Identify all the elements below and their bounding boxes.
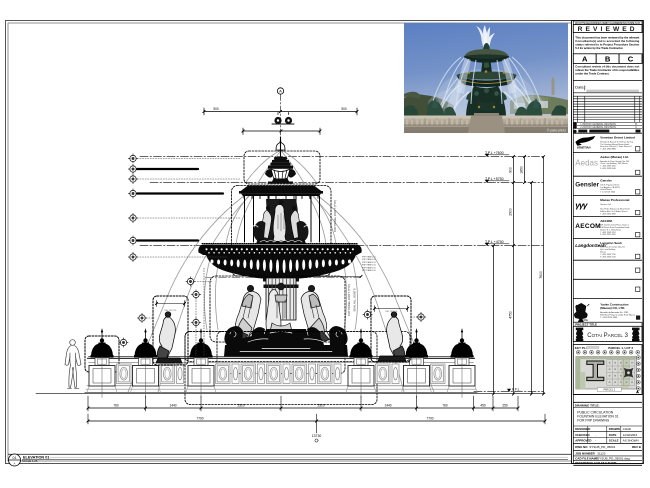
svg-text:500: 500 — [341, 107, 347, 111]
svg-text:Macau Professional: Macau Professional — [600, 198, 629, 202]
svg-text:T 1 213 327 3600: T 1 213 327 3600 — [600, 192, 615, 194]
svg-text:4750: 4750 — [509, 311, 513, 319]
svg-text:FRP PANEL JOINT (TYP): FRP PANEL JOINT (TYP) — [347, 284, 351, 316]
svg-text:A: A — [14, 462, 16, 466]
svg-text:31123: 31123 — [597, 451, 605, 455]
svg-text:1850: 1850 — [520, 166, 524, 174]
svg-text:PARCEL 1, LOT 3: PARCEL 1, LOT 3 — [608, 346, 633, 350]
svg-text:760: 760 — [442, 404, 448, 408]
svg-text:13730: 13730 — [312, 434, 322, 438]
svg-text:FRP PANEL 06: FRP PANEL 06 — [362, 269, 377, 272]
svg-text:01: 01 — [13, 456, 17, 460]
svg-text:A: A — [582, 54, 588, 63]
svg-text:REV B: REV B — [632, 445, 641, 449]
svg-text:Avenida da Amizade No. 1287,: Avenida da Amizade No. 1287, — [600, 311, 629, 314]
svg-text:7600: 7600 — [539, 271, 543, 279]
svg-text:AS SHOWN: AS SHOWN — [623, 439, 639, 443]
svg-text:YAOKE: YAOKE — [579, 318, 588, 322]
svg-text:DRAWN: DRAWN — [609, 427, 620, 431]
svg-text:FRP PANEL 04: FRP PANEL 04 — [362, 264, 377, 267]
svg-text:B: B — [605, 54, 611, 63]
svg-text:Gensler: Gensler — [575, 182, 599, 189]
svg-text:1440: 1440 — [384, 404, 391, 408]
svg-text:FRP PANEL JOINT (TYP): FRP PANEL JOINT (TYP) — [333, 200, 337, 232]
svg-text:2 22/03/16 GENERAL REVIS: 2 22/03/16 GENERAL REVISION — [580, 126, 616, 129]
svg-text:CHECKED: CHECKED — [575, 433, 589, 437]
svg-text:© paris-photo: © paris-photo — [547, 129, 566, 133]
svg-text:REFERENCE CAD FILE NAME: REFERENCE CAD FILE NAME — [575, 461, 616, 465]
svg-text:T +853 2870 3360: T +853 2870 3360 — [600, 317, 618, 319]
svg-text:SCALE: SCALE — [609, 439, 619, 443]
svg-text:SYSUB_PD_05001: SYSUB_PD_05001 — [589, 445, 615, 449]
svg-text:REVIEWED: REVIEWED — [578, 26, 638, 33]
svg-text:FRP PANEL 05: FRP PANEL 05 — [362, 266, 377, 269]
svg-text:SEAL ALL JOINTS: SEAL ALL JOINTS — [353, 288, 357, 311]
svg-text:250: 250 — [502, 404, 508, 408]
svg-text:SYSUB_PD_05001.dwg: SYSUB_PD_05001.dwg — [597, 456, 630, 460]
svg-text:FRP PANEL 01: FRP PANEL 01 — [362, 256, 377, 259]
svg-text:APPROVED: APPROVED — [575, 439, 591, 443]
svg-text:JOB NUMBER: JOB NUMBER — [575, 451, 595, 455]
svg-text:12/04/2016: 12/04/2016 — [623, 433, 638, 437]
svg-text:2510: 2510 — [317, 404, 324, 408]
svg-text:Services Ltd.: Services Ltd. — [600, 203, 611, 206]
svg-text:7700: 7700 — [196, 417, 203, 421]
svg-text:-: - — [595, 433, 596, 437]
svg-text:Edf. Nam Fong, 11 andar E11, M: Edf. Nam Fong, 11 andar E11, Macau — [600, 314, 636, 317]
svg-text:F.F.L.: F.F.L. — [512, 388, 521, 392]
svg-text:F +853 2833 1532: F +853 2833 1532 — [600, 256, 615, 258]
svg-text:7700: 7700 — [426, 417, 433, 421]
svg-text:F +853 2833 0546: F +853 2833 0546 — [600, 168, 615, 170]
svg-text:CHAD: CHAD — [623, 427, 631, 431]
svg-text:500: 500 — [213, 107, 219, 111]
svg-text:-: - — [595, 439, 596, 443]
svg-text:AECOM: AECOM — [575, 223, 601, 230]
svg-text:(Macau) CO, LTD.: (Macau) CO, LTD. — [600, 306, 625, 310]
svg-text:under the Trade Contract.: under the Trade Contract. — [575, 71, 609, 75]
svg-text:FRP PANEL 03: FRP PANEL 03 — [362, 261, 377, 264]
svg-text:AECOM: AECOM — [600, 219, 612, 223]
svg-text:Langdon Seah: Langdon Seah — [600, 241, 621, 245]
svg-text:2510: 2510 — [237, 404, 244, 408]
svg-text:5.4 for action by the Trade Co: 5.4 for action by the Trade Contractor. — [575, 46, 623, 50]
svg-text:2900: 2900 — [509, 208, 513, 216]
svg-text:DATE: DATE — [609, 433, 617, 437]
svg-text:Venetian Orient Limited: Venetian Orient Limited — [600, 136, 635, 140]
svg-text:PARCEL 3: PARCEL 3 — [603, 389, 615, 392]
svg-text:FOR FRP DRAWING: FOR FRP DRAWING — [577, 418, 609, 422]
svg-text:C: C — [635, 126, 637, 129]
svg-text:760: 760 — [113, 404, 119, 408]
svg-text:C: C — [628, 54, 634, 63]
svg-text:DRAWING TITLE:: DRAWING TITLE: — [575, 403, 600, 407]
svg-text:SCALE 1:25: SCALE 1:25 — [22, 459, 38, 463]
svg-text:T +853 2832 3268: T +853 2832 3268 — [600, 213, 615, 215]
svg-text:Aedas (Macau) Ltd.: Aedas (Macau) Ltd. — [600, 155, 629, 159]
svg-text:A: A — [279, 89, 282, 94]
svg-text:THE TRITON: THE TRITON — [164, 310, 177, 312]
svg-text:1440: 1440 — [169, 404, 176, 408]
svg-text:DWG NO: DWG NO — [575, 445, 588, 449]
svg-text:Gensler: Gensler — [600, 179, 612, 183]
svg-text:FRP PANEL 02: FRP PANEL 02 — [362, 258, 377, 261]
svg-text:900: 900 — [509, 167, 513, 173]
svg-text:DESIGNED: DESIGNED — [575, 427, 590, 431]
svg-text:450: 450 — [480, 404, 486, 408]
svg-text:VENETIAN: VENETIAN — [577, 146, 591, 150]
svg-text:Aedas: Aedas — [575, 159, 598, 168]
svg-text:T +853 2882 8888: T +853 2882 8888 — [600, 149, 615, 151]
svg-text:THE TRITON: THE TRITON — [385, 311, 398, 313]
svg-text:F +852 2891 0305: F +852 2891 0305 — [600, 234, 615, 236]
svg-text:CAD FILE NAME: CAD FILE NAME — [575, 456, 598, 460]
